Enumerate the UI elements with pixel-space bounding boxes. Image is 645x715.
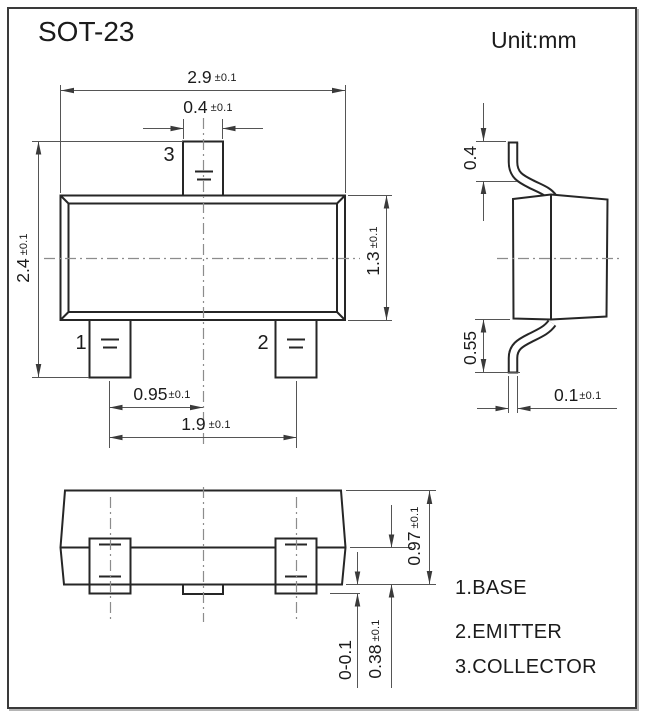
dim-lead-thickness-label: 0.1±0.1 xyxy=(554,383,601,407)
dim-body-width-label: 2.9±0.1 xyxy=(152,65,272,89)
front-extension-lines xyxy=(330,548,412,594)
side-body xyxy=(513,195,608,320)
pin2-number: 2 xyxy=(253,331,273,355)
dim-standoff-label: 0-0.1 xyxy=(333,620,357,700)
front-view-centerlines xyxy=(111,487,297,622)
legend-pin1-base: 1.BASE xyxy=(455,576,527,600)
legend-pin3-collector: 3.COLLECTOR xyxy=(455,655,597,679)
page-title: SOT-23 xyxy=(38,17,134,47)
datasheet-drawing-page: SOT-23 Unit:mm 2.9±0.1 0.4±0.1 2.4±0.1 1… xyxy=(0,0,645,715)
dim-bottom-lead-height-label: 0.55 xyxy=(458,320,482,376)
dim-standoff-arrows xyxy=(355,572,361,607)
dim-body-length-label: 1.3±0.1 xyxy=(361,196,385,306)
dim-lead-offset-label: 0.95±0.1 xyxy=(100,382,224,406)
pin3-number: 3 xyxy=(159,143,179,167)
dim-lead-span-label: 1.9±0.1 xyxy=(144,412,268,436)
unit-label: Unit:mm xyxy=(491,27,577,53)
dim-tab-width-label: 0.4±0.1 xyxy=(148,95,268,119)
side-view xyxy=(475,103,623,413)
dim-shoulder-height-label: 0.38±0.1 xyxy=(363,594,387,704)
top-body-inner xyxy=(69,204,338,313)
pin1-number: 1 xyxy=(71,331,91,355)
dim-2-4-lines xyxy=(32,141,183,378)
body-chamfer-lines xyxy=(61,196,346,321)
package-drawing xyxy=(0,0,645,715)
dim-top-lead-height-label: 0.4 xyxy=(458,136,482,180)
dim-body-height-label: 0.97±0.1 xyxy=(402,481,426,591)
dim-0-38-arrows xyxy=(389,535,395,598)
bottom-lead-body xyxy=(513,323,552,372)
dim-overall-length-label: 2.4±0.1 xyxy=(11,203,35,313)
dim-0-1-arrows xyxy=(496,406,531,412)
top-body-outer xyxy=(61,196,346,321)
legend-pin2-emitter: 2.EMITTER xyxy=(455,620,562,644)
